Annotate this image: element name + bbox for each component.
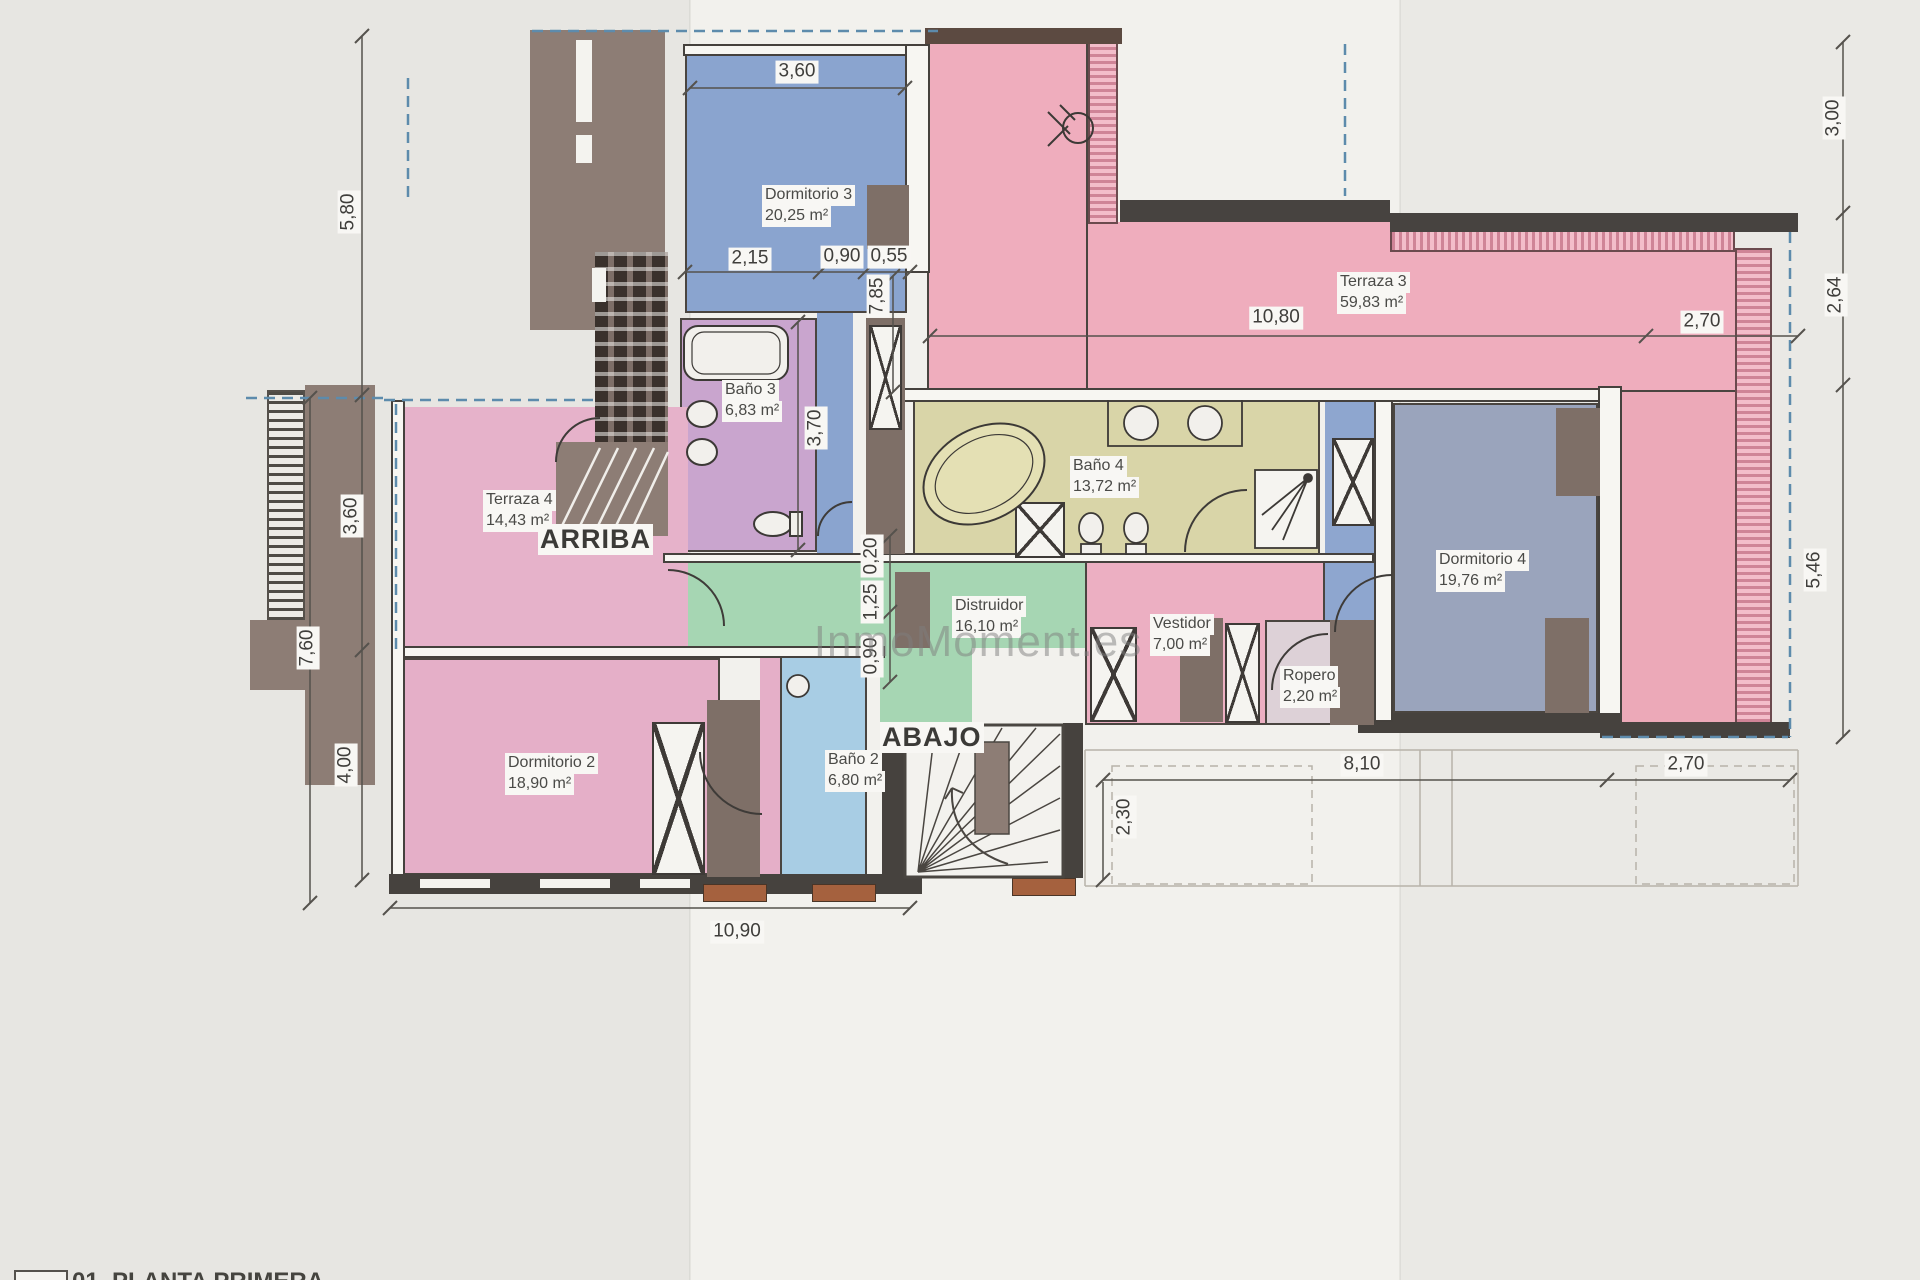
room-area: 6,80 m² (825, 771, 885, 792)
room-name: Terraza 4 (483, 490, 556, 511)
wall-wing-top (1390, 213, 1798, 232)
room-label-ropero: Ropero 2,20 m² (1280, 666, 1340, 708)
dim-label: 10,90 (710, 921, 764, 944)
dim-label: 4,00 (335, 744, 358, 787)
room-name: Baño 3 (722, 380, 779, 401)
room-name: Dormitorio 2 (505, 753, 598, 774)
dim-label: 3,60 (341, 495, 364, 538)
wall-north (1120, 200, 1390, 222)
dim-label: 0,20 (861, 535, 884, 578)
legend-title: 01. PLANTA PRIMERA (72, 1268, 324, 1280)
dim-label: 8,10 (1341, 754, 1384, 777)
room-name: Baño 4 (1070, 456, 1127, 477)
dim-label: 3,70 (805, 407, 828, 450)
staircase-treads-area (556, 442, 668, 536)
dim-label: 5,46 (1804, 549, 1827, 592)
stairwell-wall (1063, 723, 1083, 878)
room-name: Dormitorio 3 (762, 185, 855, 206)
wall-dorm4-bottom (1358, 713, 1622, 733)
window-slit (576, 135, 592, 163)
wall-wing-bottom (1600, 722, 1790, 738)
dim-label: 2,70 (1665, 754, 1708, 777)
terrace-hatch-strip (1735, 248, 1772, 724)
room-label-vestidor: Vestidor 7,00 m² (1150, 614, 1214, 656)
dim-label: 7,60 (297, 627, 320, 670)
wall-left (391, 400, 405, 878)
terrace-hatch-strip (1088, 38, 1118, 224)
room-label-bano-2: Baño 2 6,80 m² (825, 750, 885, 792)
shaft-xbox-dorm4 (1332, 438, 1374, 526)
room-area: 6,83 m² (722, 401, 782, 422)
room-area: 19,76 m² (1436, 571, 1505, 592)
room-bano-3 (680, 318, 817, 552)
wall-terrace-top (925, 28, 1122, 44)
room-name: Terraza 3 (1337, 272, 1410, 293)
legend-swatch (14, 1270, 68, 1280)
room-name: Ropero (1280, 666, 1338, 687)
room-dormitorio-2 (760, 652, 780, 877)
room-area: 13,72 m² (1070, 477, 1139, 498)
stairs-up-label: ARRIBA (538, 524, 653, 555)
room-area: 18,90 m² (505, 774, 574, 795)
room-dormitorio-3 (685, 48, 907, 313)
dim-label: 2,70 (1681, 311, 1724, 334)
window-sill (812, 884, 876, 902)
floor-plan-scan: 3,60 2,15 0,90 0,55 7,85 3,70 10,80 2,70… (0, 0, 1920, 1280)
window-slit (540, 879, 610, 888)
dim-label: 2,64 (1825, 274, 1848, 317)
dim-label: 0,55 (868, 246, 911, 269)
wall-dorm2-top (393, 646, 885, 658)
wall-dorm3-top (683, 44, 907, 56)
window-slit (576, 40, 592, 122)
wardrobe-block-dorm2 (707, 700, 760, 877)
exterior-wall-band (305, 385, 375, 785)
wall-dorm4-right-window (1598, 386, 1622, 722)
watermark-text: InmoMoment.es (814, 617, 1142, 667)
dim-label: 3,60 (776, 61, 819, 84)
window-slit (420, 879, 490, 888)
window-slit (592, 268, 606, 302)
room-name: Vestidor (1150, 614, 1214, 635)
room-label-dormitorio-3: Dormitorio 3 20,25 m² (762, 185, 855, 227)
shaft-xbox (869, 325, 902, 430)
room-label-bano-4: Baño 4 13,72 m² (1070, 456, 1139, 498)
dim-label: 2,30 (1114, 796, 1137, 839)
room-area: 20,25 m² (762, 206, 831, 227)
window-sill (1012, 878, 1076, 896)
stairs-down-label: ABAJO (880, 722, 984, 753)
dim-label: 3,00 (1823, 97, 1846, 140)
exterior-hatch-strip (267, 390, 305, 625)
room-area: 2,20 m² (1280, 687, 1340, 708)
wardrobe-xbox-dorm2 (652, 722, 705, 875)
room-area: 59,83 m² (1337, 293, 1406, 314)
room-name: Baño 2 (825, 750, 882, 771)
wall-block (867, 185, 909, 249)
terrace-hatch-strip (1390, 230, 1735, 252)
wardrobe-xbox-vestidor (1225, 623, 1260, 723)
room-label-dormitorio-2: Dormitorio 2 18,90 m² (505, 753, 598, 795)
dim-label: 5,80 (338, 191, 361, 234)
room-area: 7,00 m² (1150, 635, 1210, 656)
room-name: Distruidor (952, 596, 1026, 617)
window-slit (640, 879, 690, 888)
room-terraza-3 (927, 42, 1088, 392)
wall-bath-top (903, 388, 1622, 402)
room-label-bano-3: Baño 3 6,83 m² (722, 380, 782, 422)
room-label-terraza-3: Terraza 3 59,83 m² (1337, 272, 1410, 314)
wall-block (1556, 408, 1600, 496)
room-label-dormitorio-4: Dormitorio 4 19,76 m² (1436, 550, 1529, 592)
wall-vestidor-right (1374, 400, 1393, 722)
dim-label: 2,15 (729, 248, 772, 271)
dim-label: 0,90 (821, 246, 864, 269)
room-terraza-3-wing (1622, 392, 1735, 724)
dim-label: 7,85 (867, 275, 890, 318)
dim-label: 10,80 (1249, 307, 1303, 330)
window-sill (703, 884, 767, 902)
room-name: Dormitorio 4 (1436, 550, 1529, 571)
shaft-xbox (1015, 502, 1065, 558)
wall-block (1545, 618, 1589, 720)
